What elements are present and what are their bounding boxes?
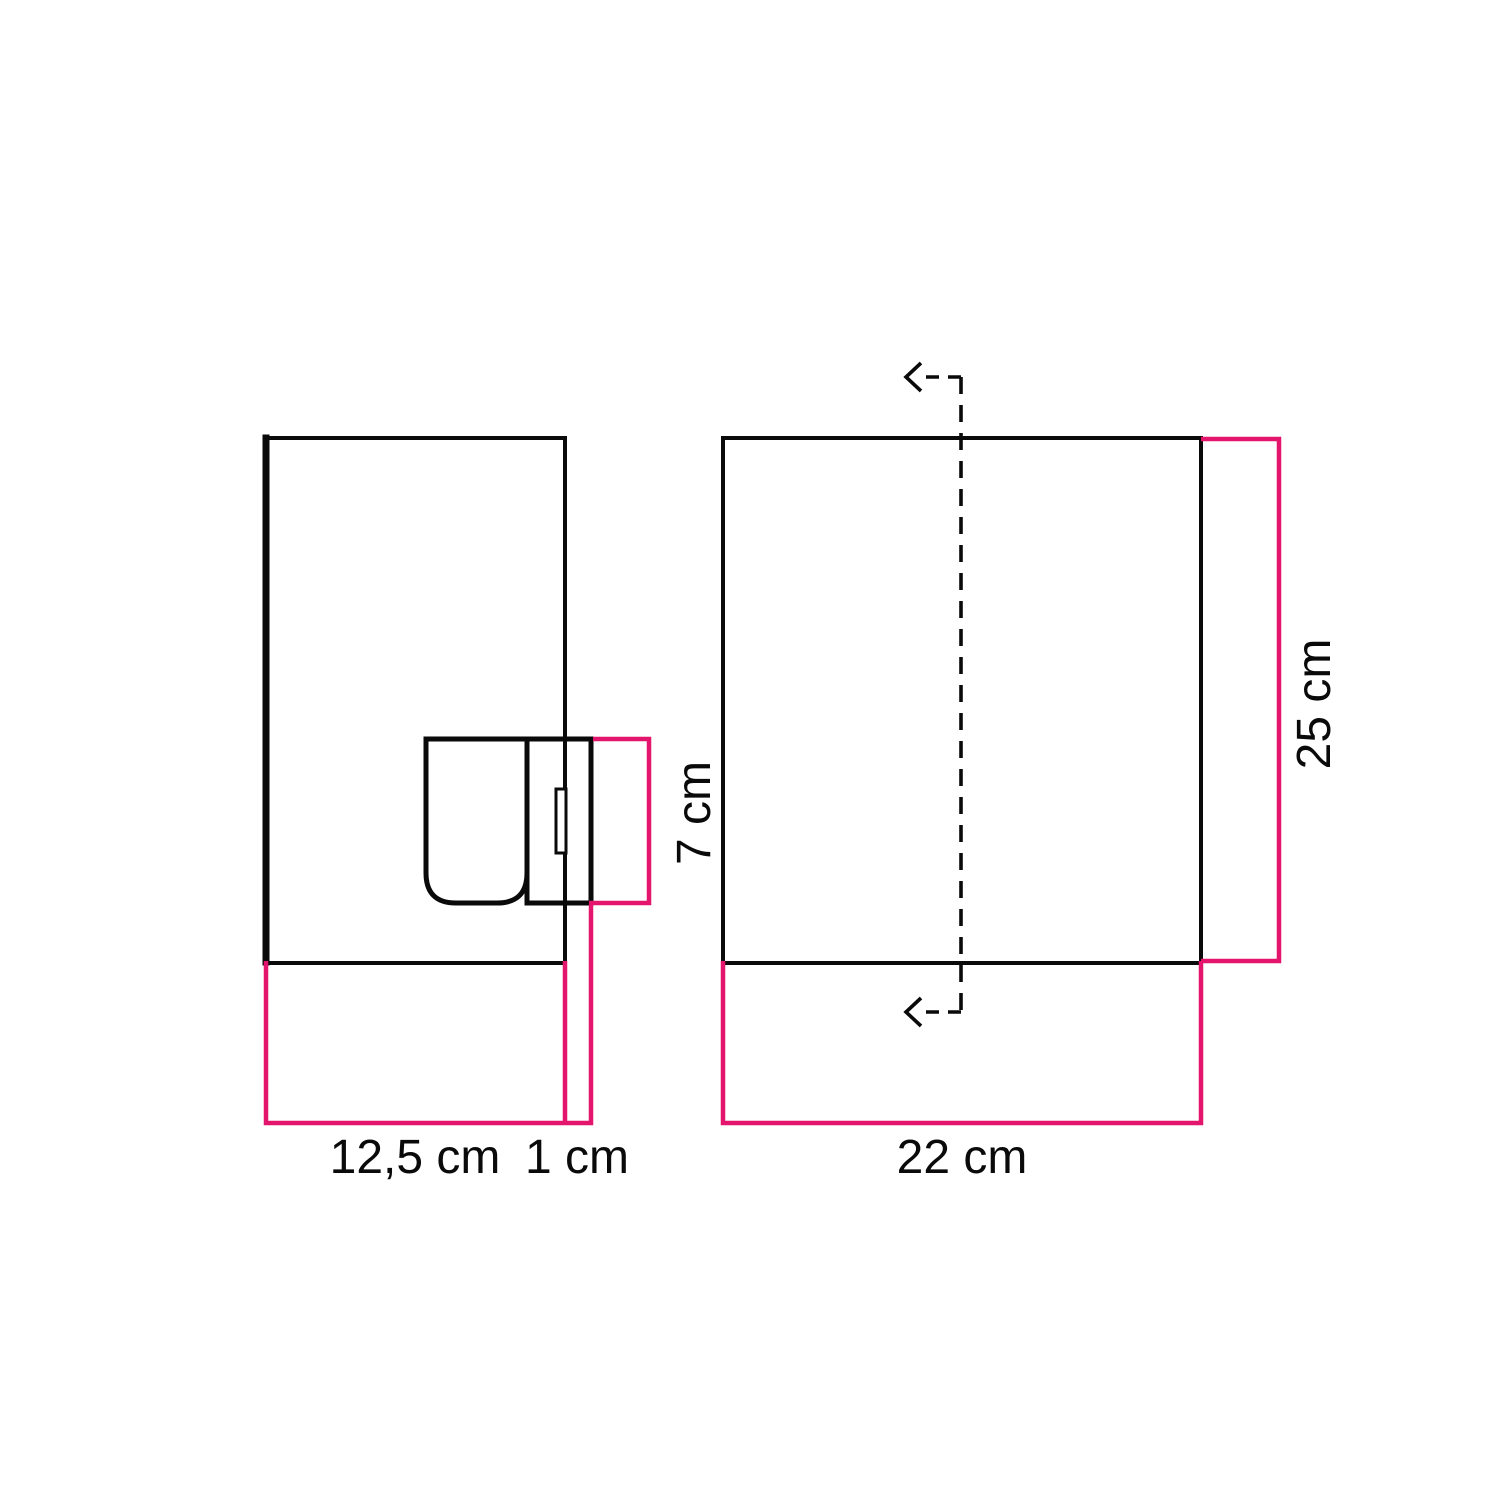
side-width-label: 12,5 cm bbox=[330, 1131, 501, 1184]
arrow-left-icon-top bbox=[906, 363, 921, 391]
front-height-label: 25 cm bbox=[1288, 639, 1341, 770]
socket-cup-shape bbox=[426, 739, 527, 903]
dimension-bracket-side-width bbox=[266, 905, 591, 1123]
dimension-bracket-front-height bbox=[1201, 439, 1279, 961]
side-offset-label: 1 cm bbox=[525, 1131, 629, 1184]
side-view: 12,5 cm 1 cm 7 cm bbox=[266, 435, 721, 1185]
diagram-canvas: 12,5 cm 1 cm 7 cm 22 cm 25 cm bbox=[0, 0, 1500, 1500]
front-view: 22 cm 25 cm bbox=[723, 363, 1341, 1184]
front-width-label: 22 cm bbox=[897, 1131, 1028, 1184]
dimension-diagram: 12,5 cm 1 cm 7 cm 22 cm 25 cm bbox=[0, 0, 1500, 1500]
arrow-left-icon-bottom bbox=[906, 998, 921, 1026]
dimension-bracket-socket-height bbox=[589, 739, 649, 903]
bracket-slot-shape bbox=[556, 789, 566, 853]
socket-height-label: 7 cm bbox=[668, 761, 721, 865]
dimension-bracket-front-width bbox=[723, 961, 1201, 1123]
